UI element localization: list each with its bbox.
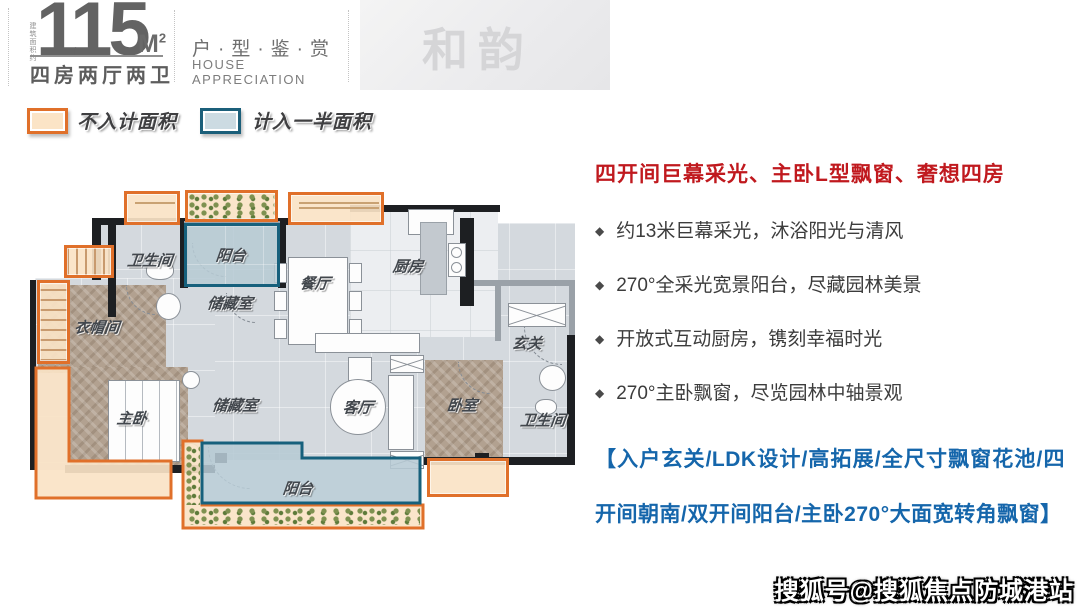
floorplan: 卫生间 阳台 储藏室 衣帽间 主卧 储藏室 餐厅 厨房 玄关 客厅 卧室 卫生间… [30,185,610,545]
sohu-watermark: 搜狐号@搜狐焦点防城港站 [775,571,1074,606]
legend: 不入计面积 计入一半面积 [20,103,440,141]
room-label-foyer: 玄关 [511,333,543,354]
balcony-bottom-zone [30,185,610,545]
divider [8,8,9,86]
project-watermark: 和韵 [422,14,534,80]
highlights-footer: 【入户玄关/LDK设计/高拓展/全尺寸飘窗花池/四开间朝南/双开间阳台/主卧27… [595,432,1065,542]
room-label-storage2: 储藏室 [211,395,258,416]
highlight-item: ◆开放式互动厨房，镌刻幸福时光 [595,324,1065,351]
diamond-bullet-icon: ◆ [595,224,604,238]
room-label-living: 客厅 [342,397,374,418]
room-label-storage1: 储藏室 [206,293,253,314]
room-label-cloakroom: 衣帽间 [73,317,120,338]
room-label-bath2: 卫生间 [519,410,566,431]
legend-swatch-orange [27,108,68,134]
highlight-item: ◆270°主卧飘窗，尽览园林中轴景观 [595,378,1065,405]
highlight-item: ◆270°全采光宽景阳台，尽藏园林美景 [595,270,1065,297]
room-label-dining: 餐厅 [299,273,331,294]
diamond-bullet-icon: ◆ [595,278,604,292]
legend-swatch-blue [200,108,241,134]
room-label-balcony-bottom: 阳台 [282,478,314,499]
series-title-en: HOUSE APPRECIATION [192,57,360,87]
room-label-kitchen: 厨房 [392,256,424,277]
highlights-title: 四开间巨幕采光、主卧L型飘窗、奢想四房 [595,158,1065,188]
divider [174,10,175,82]
layout-text: 四房两厅两卫 [30,59,174,88]
diamond-bullet-icon: ◆ [595,332,604,346]
highlight-item: ◆约13米巨幕采光，沐浴阳光与清风 [595,216,1065,243]
room-label-bedroom: 卧室 [446,395,478,416]
highlights-list: ◆约13米巨幕采光，沐浴阳光与清风 ◆270°全采光宽景阳台，尽藏园林美景 ◆开… [595,216,1065,405]
highlights-panel: 四开间巨幕采光、主卧L型飘窗、奢想四房 ◆约13米巨幕采光，沐浴阳光与清风 ◆2… [595,158,1065,542]
project-watermark-box: 和韵 [360,0,610,90]
room-label-bath1: 卫生间 [126,250,173,271]
legend-label: 不入计面积 [77,107,177,134]
legend-label: 计入一半面积 [252,107,372,134]
header: 建筑面积约 115 M2 四房两厅两卫 户·型·鉴·赏 HOUSE APPREC… [0,0,360,95]
room-label-master-bedroom: 主卧 [116,408,148,429]
divider [30,55,163,57]
diamond-bullet-icon: ◆ [595,386,604,400]
room-label-balcony-top: 阳台 [215,245,247,266]
promo-page: 建筑面积约 115 M2 四房两厅两卫 户·型·鉴·赏 HOUSE APPREC… [0,0,1080,608]
